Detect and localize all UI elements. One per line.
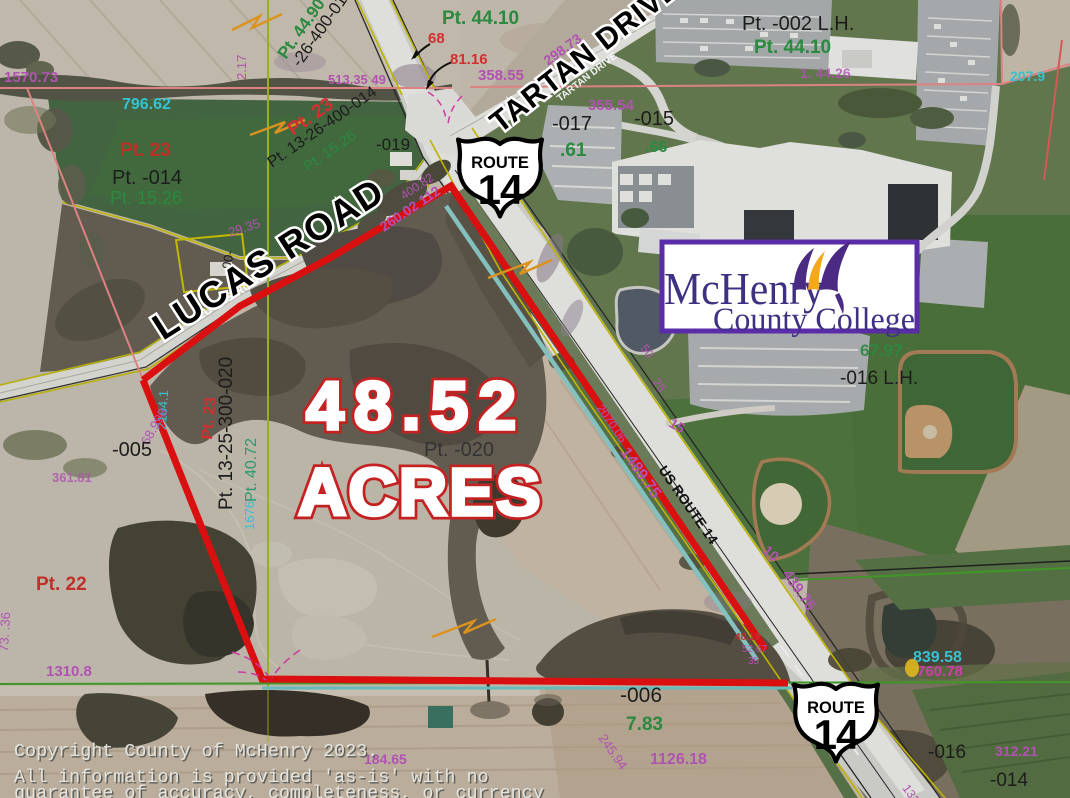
svg-text:Pt. -014: Pt. -014: [112, 167, 182, 189]
svg-text:-015: -015: [634, 108, 674, 130]
svg-text:Copyright County of McHenry 20: Copyright County of McHenry 2023.: [14, 741, 378, 762]
svg-text:Pt. 15.26: Pt. 15.26: [110, 188, 182, 208]
svg-text:guarantee of accuracy, complet: guarantee of accuracy, completeness, or …: [14, 783, 544, 798]
svg-text:513.35 49: 513.35 49: [328, 72, 386, 87]
svg-text:Pt. 44.10: Pt. 44.10: [754, 37, 831, 58]
svg-text:-017: -017: [552, 113, 592, 135]
svg-text:-014: -014: [990, 770, 1028, 791]
svg-text:Pt. -002 L.H.: Pt. -002 L.H.: [742, 13, 854, 35]
svg-text:312.21: 312.21: [995, 743, 1038, 759]
svg-text:.66: .66: [645, 139, 667, 156]
svg-text:ACRES: ACRES: [298, 455, 543, 530]
svg-text:67.97: 67.97: [860, 341, 903, 360]
svg-text:-016 L.H.: -016 L.H.: [840, 368, 918, 389]
svg-text:1310.8: 1310.8: [46, 663, 92, 680]
svg-text:2.17: 2.17: [234, 55, 249, 80]
svg-text:1126.18: 1126.18: [650, 751, 707, 768]
svg-text:48.19: 48.19: [735, 632, 760, 643]
svg-text:-006: -006: [620, 684, 662, 707]
svg-text:48.52: 48.52: [306, 368, 526, 444]
svg-text:73. .36: 73. .36: [0, 612, 13, 652]
svg-text:355.54: 355.54: [588, 97, 635, 114]
svg-text:760.78: 760.78: [917, 663, 963, 680]
svg-text:Pt. 40.72: Pt. 40.72: [243, 438, 260, 502]
svg-text:Pt. 23: Pt. 23: [120, 140, 171, 161]
svg-text:1676.: 1676.: [242, 497, 257, 530]
svg-text:14: 14: [478, 166, 524, 213]
svg-text:1570.73: 1570.73: [4, 69, 58, 86]
svg-text:207.9: 207.9: [1010, 68, 1045, 84]
svg-text:81.16: 81.16: [450, 51, 488, 68]
svg-text:796.62: 796.62: [122, 96, 171, 113]
svg-text:-016: -016: [928, 742, 966, 763]
svg-text:.61: .61: [560, 140, 587, 161]
svg-text:1. 44.26: 1. 44.26: [800, 65, 851, 81]
svg-text:361.81: 361.81: [52, 470, 92, 485]
svg-text:14: 14: [814, 711, 860, 758]
svg-text:Pt. 22: Pt. 22: [36, 574, 87, 595]
svg-text:Pt. 13-25-300-020: Pt. 13-25-300-020: [216, 357, 237, 510]
svg-text:358.55: 358.55: [478, 67, 524, 84]
svg-text:52.67: 52.67: [742, 644, 767, 655]
svg-text:Pt. -020: Pt. -020: [424, 439, 494, 461]
svg-text:35: 35: [748, 656, 760, 667]
svg-text:68: 68: [428, 30, 445, 47]
svg-text:Pt. 44.10: Pt. 44.10: [442, 8, 519, 29]
svg-text:-019: -019: [376, 135, 410, 154]
svg-text:7.83: 7.83: [626, 714, 663, 735]
svg-text:County College: County College: [713, 302, 915, 338]
svg-text:-005: -005: [112, 439, 152, 461]
